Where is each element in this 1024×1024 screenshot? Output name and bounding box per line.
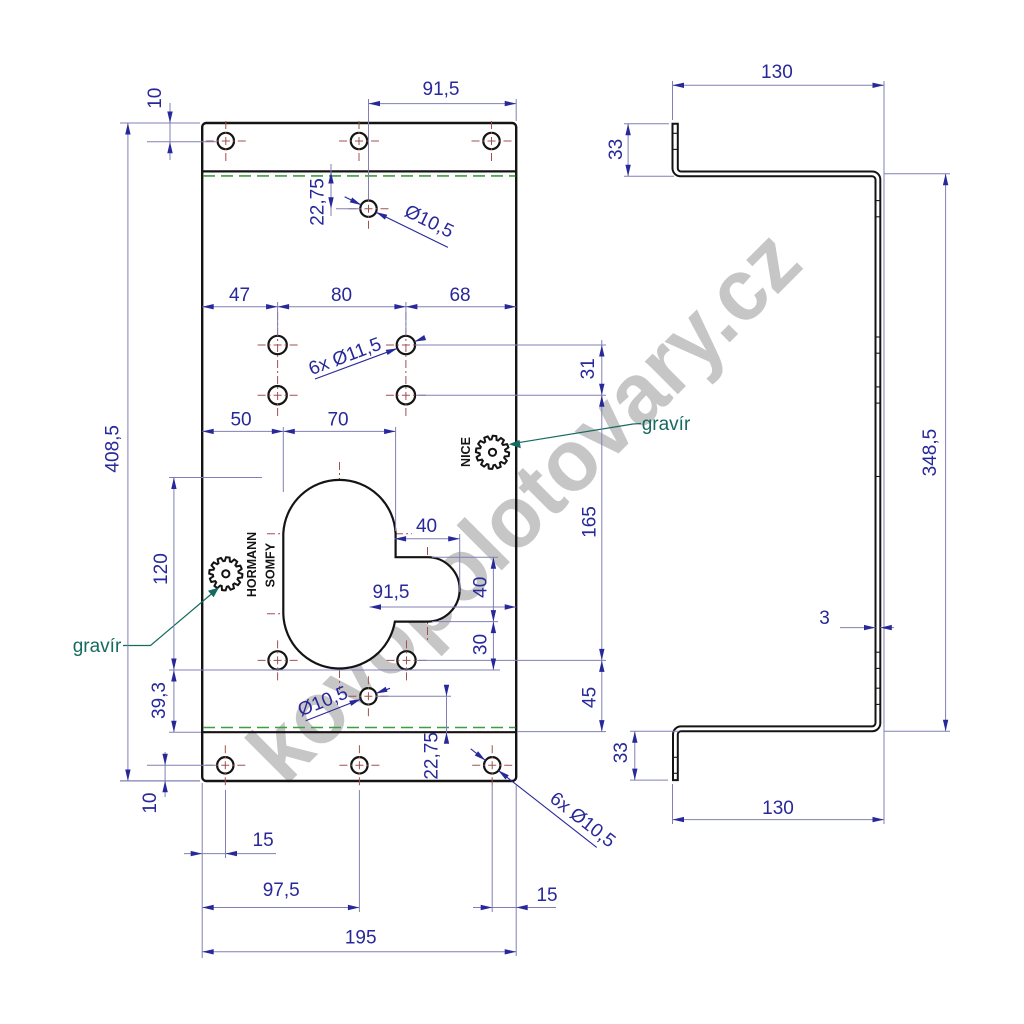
svg-text:10: 10 [145, 88, 166, 109]
svg-text:15: 15 [536, 885, 557, 906]
svg-text:80: 80 [331, 285, 352, 306]
svg-text:SOMFY: SOMFY [263, 542, 277, 587]
svg-text:39,3: 39,3 [149, 682, 170, 719]
svg-text:408,5: 408,5 [103, 425, 124, 473]
svg-text:130: 130 [761, 62, 793, 83]
svg-text:40: 40 [471, 577, 492, 598]
svg-text:HORMANN: HORMANN [245, 532, 259, 597]
svg-text:45: 45 [580, 687, 601, 708]
svg-text:40: 40 [416, 516, 437, 537]
svg-text:15: 15 [253, 830, 274, 851]
svg-text:33: 33 [606, 139, 627, 160]
svg-text:348,5: 348,5 [920, 429, 941, 477]
svg-text:NICE: NICE [459, 437, 473, 467]
svg-text:120: 120 [151, 553, 172, 585]
svg-text:gravír: gravír [73, 636, 122, 657]
svg-text:68: 68 [449, 285, 470, 306]
svg-text:165: 165 [580, 506, 601, 538]
svg-text:50: 50 [230, 410, 251, 431]
svg-text:91,5: 91,5 [373, 582, 410, 603]
svg-text:31: 31 [578, 358, 599, 379]
svg-text:22,75: 22,75 [422, 732, 443, 780]
svg-text:47: 47 [229, 285, 250, 306]
svg-text:33: 33 [611, 742, 632, 763]
svg-text:22,75: 22,75 [307, 178, 328, 226]
svg-text:30: 30 [471, 634, 492, 655]
svg-text:3: 3 [819, 608, 830, 629]
svg-text:70: 70 [327, 410, 348, 431]
svg-text:10: 10 [140, 793, 161, 814]
svg-text:gravír: gravír [642, 414, 691, 435]
svg-text:130: 130 [762, 798, 794, 819]
svg-text:195: 195 [345, 928, 377, 949]
svg-text:97,5: 97,5 [263, 880, 300, 901]
svg-text:91,5: 91,5 [423, 79, 460, 100]
